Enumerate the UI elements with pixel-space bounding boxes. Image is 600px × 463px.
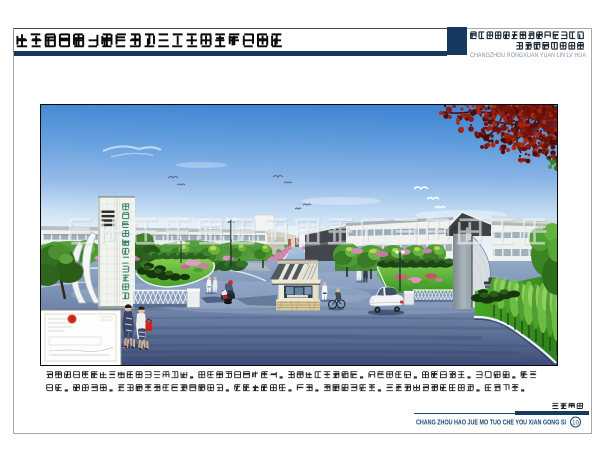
svg-text:CHANGZHOU RONGXUAN YUAN LIN LV: CHANGZHOU RONGXUAN YUAN LIN LV HUA: [470, 53, 586, 59]
svg-text:10: 10: [572, 420, 579, 426]
svg-text:CHANG ZHOU HAO JUE MO TUO CHE: CHANG ZHOU HAO JUE MO TUO CHE YOU XIAN G…: [416, 418, 566, 427]
